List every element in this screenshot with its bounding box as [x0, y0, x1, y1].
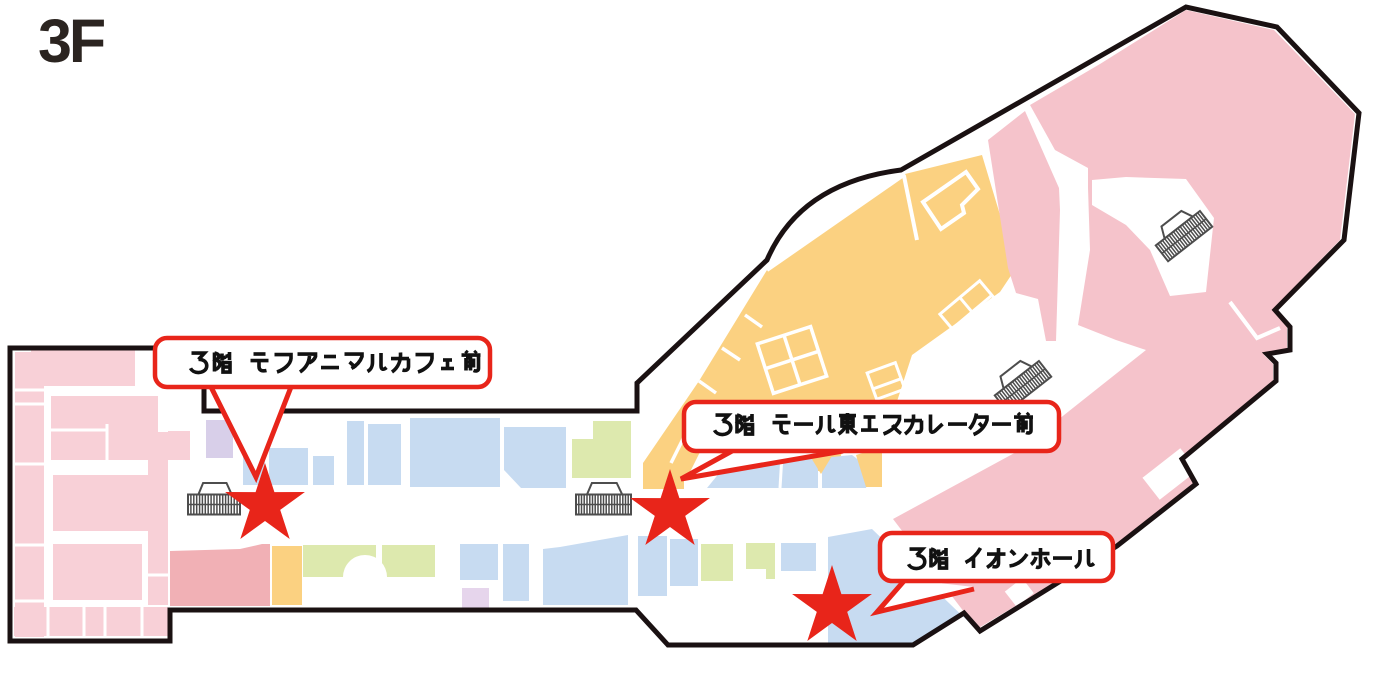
svg-text:3F: 3F — [38, 7, 105, 75]
